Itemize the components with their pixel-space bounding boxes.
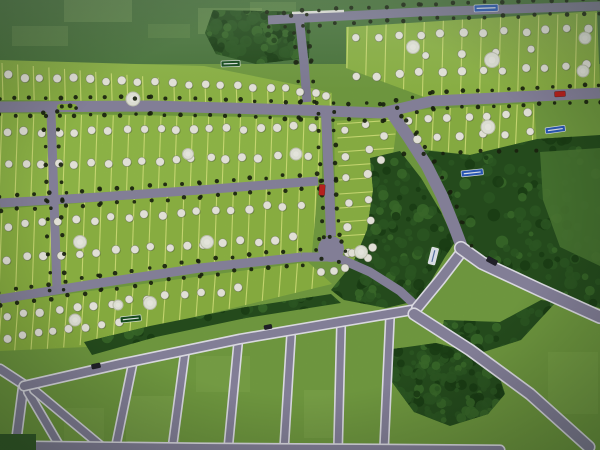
- vignette: [0, 0, 600, 450]
- subdivision-plan-canvas: [0, 0, 600, 450]
- aerial-site-model-photo: [0, 0, 600, 450]
